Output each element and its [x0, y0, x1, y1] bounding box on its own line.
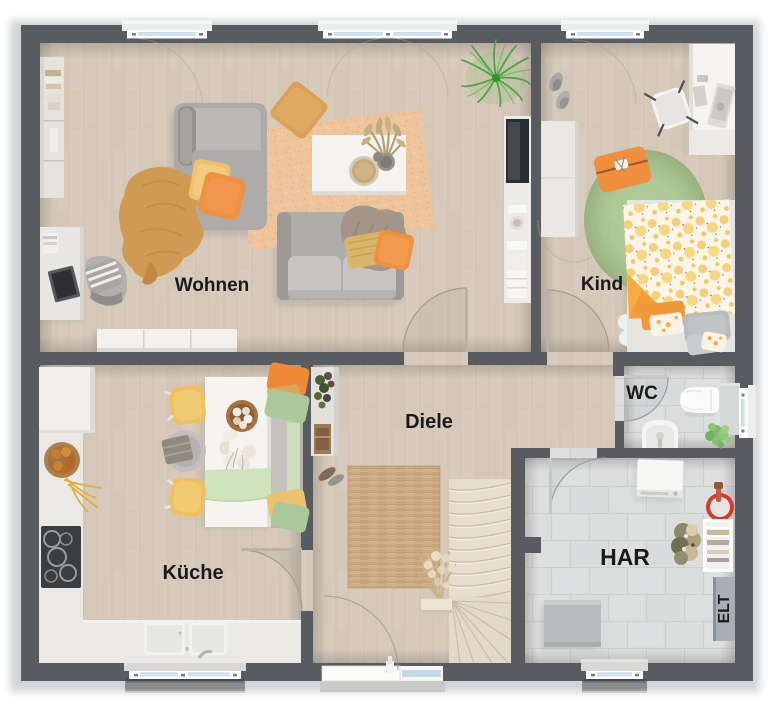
svg-text:Diele: Diele — [405, 411, 453, 433]
svg-text:Wohnen: Wohnen — [175, 275, 250, 296]
svg-text:WC: WC — [626, 383, 658, 404]
svg-text:HAR: HAR — [600, 544, 650, 570]
svg-text:Kind: Kind — [581, 274, 623, 295]
svg-text:Küche: Küche — [162, 562, 223, 584]
svg-text:ELT: ELT — [716, 594, 733, 623]
